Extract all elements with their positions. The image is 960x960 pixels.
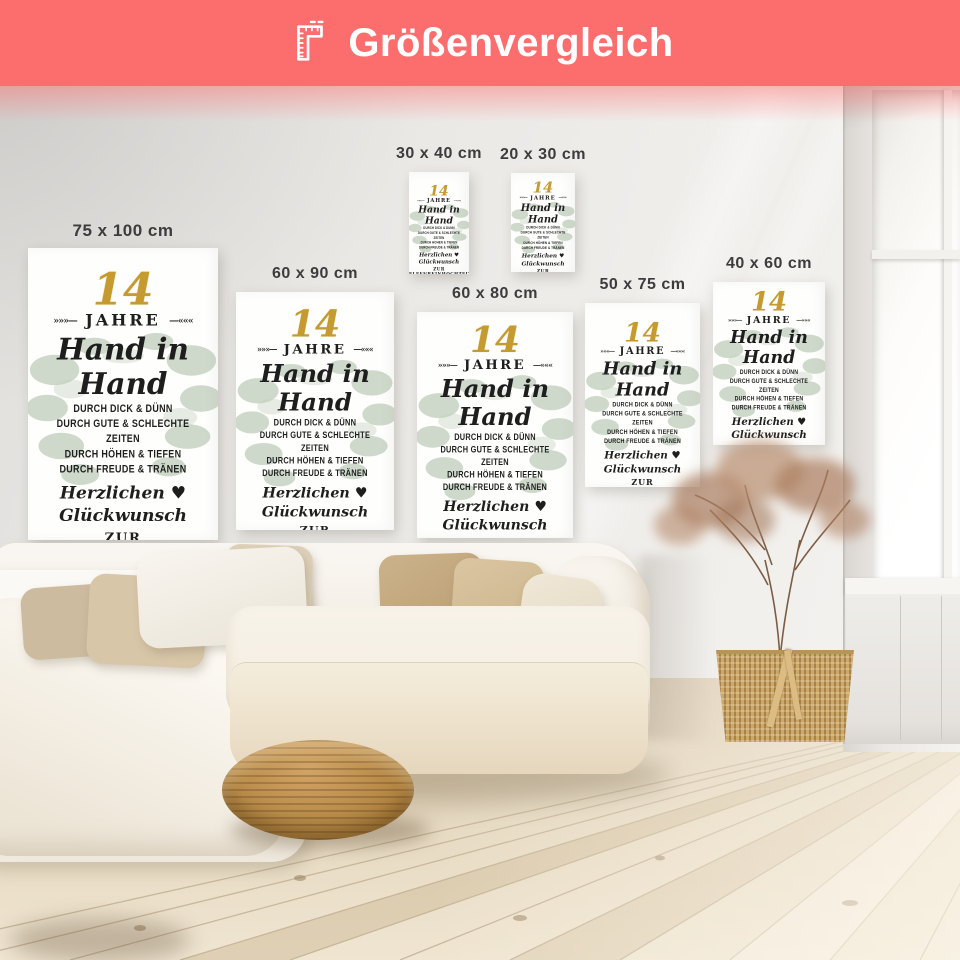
occasion-line: ZUR ELFENBEINHOCHZEIT [417,537,573,538]
jahre-row: »»»— JAHRE —««« [409,197,469,203]
poster-line: DURCH GUTE & SCHLECHTE ZEITEN [250,430,380,455]
laurel-flourish-right-icon: —««« [670,348,684,354]
jahre-label: JAHRE [747,315,791,326]
size-label: 20 x 30 cm [500,146,586,164]
poster-line: DURCH GUTE & SCHLECHTE ZEITEN [431,444,559,469]
size-label: 30 x 40 cm [396,145,482,163]
size-comparison-mockup: 75 x 100 cm 14 »»»— JAHR [0,0,960,960]
poster-line: DURCH FREUDE & TRÄNEN [414,245,463,250]
size-label: 40 x 60 cm [726,255,812,273]
jahre-label: JAHRE [85,311,160,330]
floor-shadow [10,918,190,960]
jahre-row: »»»— JAHRE —««« [511,195,575,202]
poster: 14 »»»— JAHRE —««« Hand in Hand DURCH DI… [236,292,394,530]
size-label: 60 x 80 cm [452,285,538,303]
congrats-line: Herzlichen ♥ Glückwunsch [409,251,469,265]
laurel-flourish-left-icon: »»»— [417,198,424,201]
jahre-label: JAHRE [464,357,526,373]
congrats-line: Herzlichen ♥ Glückwunsch [511,252,575,267]
occasion-line: ZUR ELFENBEINHOCHZEIT [236,524,394,530]
size-label: 50 x 75 cm [600,276,686,294]
poster-line: DURCH FREUDE & TRÄNEN [45,462,201,477]
poster-line: DURCH HÖHEN & TIEFEN [431,469,559,481]
poster-line: DURCH FREUDE & TRÄNEN [431,481,559,493]
laurel-flourish-left-icon: »»»— [600,348,614,354]
laurel-flourish-right-icon: —««« [559,196,567,200]
laurel-flourish-left-icon: »»»— [520,196,528,200]
occasion-line: ZUR ELFENBEINHOCHZEIT [28,530,218,540]
jahre-label: JAHRE [284,342,347,358]
poster-line: DURCH DICK & DÜNN [723,368,815,377]
poster-line: DURCH HÖHEN & TIEFEN [414,240,463,245]
congrats-line: Herzlichen ♥ Glückwunsch [28,482,218,528]
jahre-row: »»»— JAHRE —««« [585,345,700,357]
poster-line: DURCH GUTE & SCHLECHTE ZEITEN [414,230,463,240]
anniversary-number: 14 [409,180,469,197]
laurel-flourish-left-icon: »»»— [438,361,457,370]
anniversary-number: 14 [511,176,575,195]
poster-line: DURCH HÖHEN & TIEFEN [250,455,380,468]
poster-line: DURCH FREUDE & TRÄNEN [517,246,569,251]
laurel-flourish-right-icon: —««« [454,198,461,201]
poster-title: Hand in Hand [417,375,573,431]
poster-line: DURCH DICK & DÜNN [414,225,463,230]
anniversary-number: 14 [236,296,394,342]
laurel-flourish-right-icon: —««« [169,316,193,326]
poster-line: DURCH DICK & DÜNN [250,417,380,430]
laurel-flourish-right-icon: —««« [533,361,552,370]
poster: 14 »»»— JAHRE —««« Hand in Hand DURCH DI… [417,312,573,538]
anniversary-number: 14 [28,256,218,311]
size-label: 75 x 100 cm [73,221,174,241]
size-label: 60 x 90 cm [272,265,358,283]
poster: 14 »»»— JAHRE —««« Hand in Hand DURCH DI… [511,173,575,272]
poster-title: Hand in Hand [409,204,469,226]
laurel-flourish-right-icon: —««« [353,346,373,355]
size-comparison-header: Größenvergleich [0,0,960,86]
poster-title: Hand in Hand [713,328,825,368]
wicker-pouf [222,740,414,840]
laurel-flourish-right-icon: —««« [796,318,810,324]
poster: 14 »»»— JAHRE —««« Hand in Hand DURCH DI… [409,172,469,274]
poster: 14 »»»— JAHRE —««« Hand in Hand DURCH DI… [28,248,218,540]
poster-line: DURCH DICK & DÜNN [431,431,559,443]
congrats-line: Herzlichen ♥ Glückwunsch [236,484,394,522]
laurel-flourish-left-icon: »»»— [53,316,77,326]
congrats-line: Herzlichen ♥ Glückwunsch [417,498,573,535]
jahre-label: JAHRE [427,197,451,203]
poster-line: DURCH GUTE & SCHLECHTE ZEITEN [517,230,569,240]
jahre-row: »»»— JAHRE —««« [236,342,394,359]
laurel-flourish-left-icon: »»»— [257,346,277,355]
poster-line: DURCH GUTE & SCHLECHTE ZEITEN [45,417,201,447]
poster-title: Hand in Hand [28,333,218,401]
jahre-row: »»»— JAHRE —««« [417,357,573,373]
occasion-line: ZUR ELFENBEINHOCHZEIT [409,266,469,274]
anniversary-number: 14 [585,312,700,345]
poster-line: DURCH HÖHEN & TIEFEN [45,447,201,462]
poster-line: DURCH GUTE & SCHLECHTE ZEITEN [723,377,815,395]
occasion-line: ZUR ELFENBEINHOCHZEIT [511,268,575,272]
poster-title: Hand in Hand [585,358,700,399]
jahre-label: JAHRE [620,345,666,357]
ruler-icon [286,20,332,66]
anniversary-number: 14 [417,312,573,357]
anniversary-number: 14 [713,282,825,314]
poster-title: Hand in Hand [511,202,575,225]
poster-title: Hand in Hand [236,360,394,417]
poster-line: DURCH FREUDE & TRÄNEN [250,468,380,481]
laurel-flourish-left-icon: »»»— [728,318,742,324]
page-title: Größenvergleich [348,21,673,66]
poster-line: DURCH DICK & DÜNN [45,402,201,417]
jahre-row: »»»— JAHRE —««« [28,311,218,331]
jahre-row: »»»— JAHRE —««« [713,315,825,327]
jahre-label: JAHRE [530,195,555,201]
